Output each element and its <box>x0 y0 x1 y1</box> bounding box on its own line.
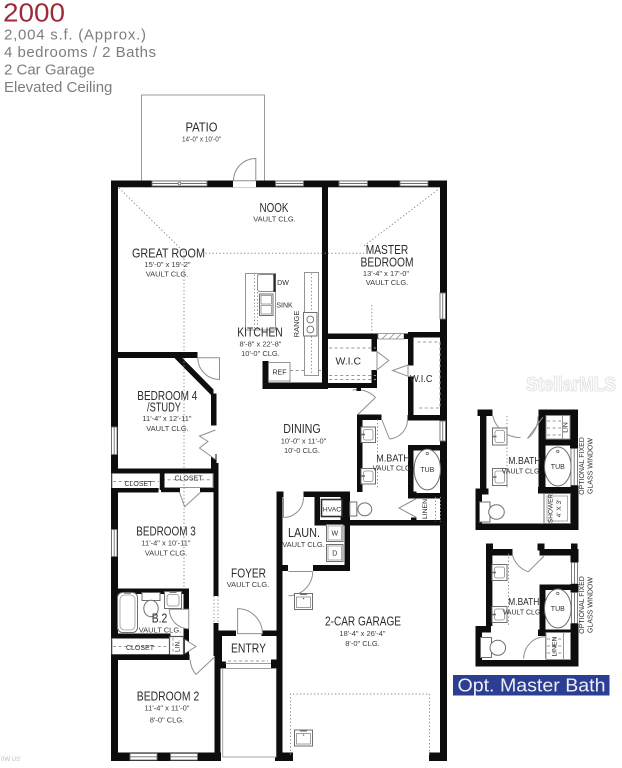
svg-text:LIN.: LIN. <box>175 640 182 652</box>
svg-text:BEDROOM: BEDROOM <box>361 256 414 270</box>
svg-text:8'-8" x 22'-8": 8'-8" x 22'-8" <box>240 340 282 349</box>
svg-text:StellarMLS: StellarMLS <box>526 374 616 396</box>
svg-text:W: W <box>331 531 338 538</box>
svg-text:FOYER: FOYER <box>231 567 266 581</box>
svg-text:HVAC: HVAC <box>323 507 341 514</box>
svg-text:VAULT CLG.: VAULT CLG. <box>227 580 270 589</box>
svg-text:VAULT CLG.: VAULT CLG. <box>502 469 542 476</box>
svg-text:13'-4" x 17'-0": 13'-4" x 17'-0" <box>363 269 409 278</box>
svg-text:M.BATH: M.BATH <box>376 453 410 465</box>
svg-text:BEDROOM 2: BEDROOM 2 <box>137 690 200 704</box>
svg-text:TUB: TUB <box>420 467 434 474</box>
svg-text:W.I.C: W.I.C <box>336 357 362 368</box>
svg-text:VAULT CLG.: VAULT CLG. <box>366 278 409 287</box>
svg-text:GLASS WINDOW: GLASS WINDOW <box>588 577 595 633</box>
svg-text:CLOSET: CLOSET <box>124 481 153 488</box>
svg-text:OPTIONAL FIXED: OPTIONAL FIXED <box>579 437 586 495</box>
svg-text:LIN: LIN <box>563 422 570 433</box>
svg-text:15'-0" x 19'-2": 15'-0" x 19'-2" <box>144 260 190 269</box>
svg-text:VAULT CLG.: VAULT CLG. <box>503 610 543 617</box>
svg-text:LAUN.: LAUN. <box>288 526 320 540</box>
svg-text:BEDROOM 3: BEDROOM 3 <box>136 525 196 539</box>
svg-text:VAULT CLG.: VAULT CLG. <box>373 466 413 473</box>
svg-text:10'-0" CLG.: 10'-0" CLG. <box>241 349 280 358</box>
svg-text:VAULT CLG.: VAULT CLG. <box>146 269 189 278</box>
svg-text:SINK: SINK <box>276 303 293 310</box>
svg-text:GLASS WINDOW: GLASS WINDOW <box>588 438 595 494</box>
svg-text:4' X 3': 4' X 3' <box>556 500 563 518</box>
svg-text:D: D <box>332 551 337 558</box>
svg-text:2 Car Garage: 2 Car Garage <box>4 62 95 79</box>
svg-text:SHOWER: SHOWER <box>548 494 555 524</box>
svg-text:REF: REF <box>273 370 287 377</box>
svg-text:M.BATH: M.BATH <box>508 596 539 608</box>
svg-text:TUB: TUB <box>551 606 565 613</box>
svg-text:11'-4" x 10'-11": 11'-4" x 10'-11" <box>141 539 191 548</box>
svg-text:TUB: TUB <box>551 464 565 471</box>
svg-text:CLOSET: CLOSET <box>174 476 203 483</box>
svg-text:VAULT CLG.: VAULT CLG. <box>139 626 182 635</box>
svg-text:VAULT CLG.: VAULT CLG. <box>146 424 189 433</box>
svg-text:VAULT CLG.: VAULT CLG. <box>145 548 188 557</box>
svg-text:ENTRY: ENTRY <box>231 642 267 656</box>
svg-text:RANGE: RANGE <box>292 311 301 338</box>
svg-text:Elevated Ceiling: Elevated Ceiling <box>4 79 112 96</box>
svg-text:4 bedrooms / 2 Baths: 4 bedrooms / 2 Baths <box>4 44 156 61</box>
svg-text:VAULT CLG.: VAULT CLG. <box>282 540 325 549</box>
svg-text:8'-0" CLG.: 8'-0" CLG. <box>150 716 185 725</box>
svg-text:2,004 s.f. (Approx.): 2,004 s.f. (Approx.) <box>4 27 146 44</box>
svg-text:2000: 2000 <box>3 0 65 28</box>
svg-text:11'-4" x 12'-11": 11'-4" x 12'-11" <box>142 414 192 423</box>
svg-text:DINING: DINING <box>283 422 321 436</box>
svg-text:14'-0" x 10'-0": 14'-0" x 10'-0" <box>182 135 221 144</box>
svg-text:LINEN: LINEN <box>552 636 559 656</box>
svg-text:Opt. Master Bath: Opt. Master Bath <box>458 676 606 696</box>
svg-text:18'-4" x 26'-4": 18'-4" x 26'-4" <box>339 629 385 638</box>
svg-text:10'-0 CLG.: 10'-0 CLG. <box>284 446 320 455</box>
svg-text:B.2: B.2 <box>152 612 168 626</box>
svg-text:CLOSET: CLOSET <box>126 645 155 652</box>
svg-text:KITCHEN: KITCHEN <box>237 326 283 340</box>
svg-text:2-CAR GARAGE: 2-CAR GARAGE <box>325 615 401 629</box>
svg-text:LINEN: LINEN <box>422 499 429 519</box>
svg-text:DW: DW <box>277 280 289 287</box>
svg-text:11'-4" x 11'-0": 11'-4" x 11'-0" <box>144 704 189 713</box>
svg-text:PATIO: PATIO <box>186 121 218 135</box>
svg-text:/STUDY: /STUDY <box>147 401 181 415</box>
svg-text:8'-0" CLG.: 8'-0" CLG. <box>345 639 380 648</box>
svg-text:0W US': 0W US' <box>1 757 21 763</box>
svg-text:10'-0" x 11'-0": 10'-0" x 11'-0" <box>281 436 327 445</box>
svg-text:GREAT ROOM: GREAT ROOM <box>132 247 205 261</box>
svg-text:OPTIONAL FIXED: OPTIONAL FIXED <box>579 576 586 634</box>
svg-text:VAULT CLG.: VAULT CLG. <box>253 214 296 223</box>
svg-text:W.I.C: W.I.C <box>410 374 433 385</box>
svg-text:NOOK: NOOK <box>260 201 290 215</box>
svg-text:M.BATH: M.BATH <box>508 455 541 467</box>
